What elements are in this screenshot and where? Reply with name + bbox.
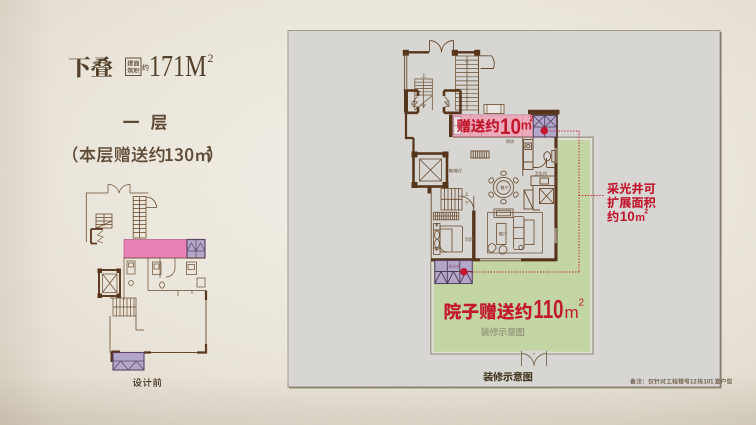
svg-text:m: m (565, 303, 579, 322)
svg-text:2: 2 (208, 51, 214, 65)
svg-text:2: 2 (644, 209, 648, 216)
svg-text:12: 12 (690, 380, 697, 386)
svg-text:101: 101 (704, 380, 715, 386)
svg-text:110: 110 (534, 296, 564, 324)
svg-text:10: 10 (620, 209, 635, 224)
svg-text:10: 10 (500, 114, 521, 139)
svg-text:2: 2 (579, 298, 585, 309)
svg-text:171M: 171M (149, 48, 207, 83)
